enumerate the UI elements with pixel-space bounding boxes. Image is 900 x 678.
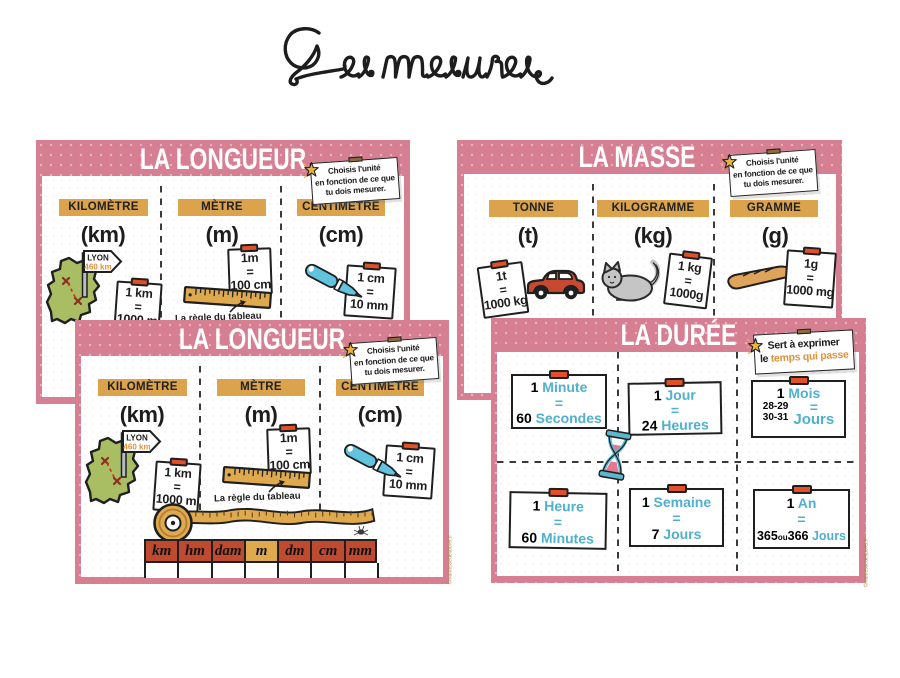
svg-text:LYON: LYON bbox=[87, 254, 109, 263]
svg-text:LYON: LYON bbox=[126, 434, 148, 443]
svg-text:460 km: 460 km bbox=[123, 443, 150, 452]
svg-text:460 km: 460 km bbox=[84, 263, 111, 272]
